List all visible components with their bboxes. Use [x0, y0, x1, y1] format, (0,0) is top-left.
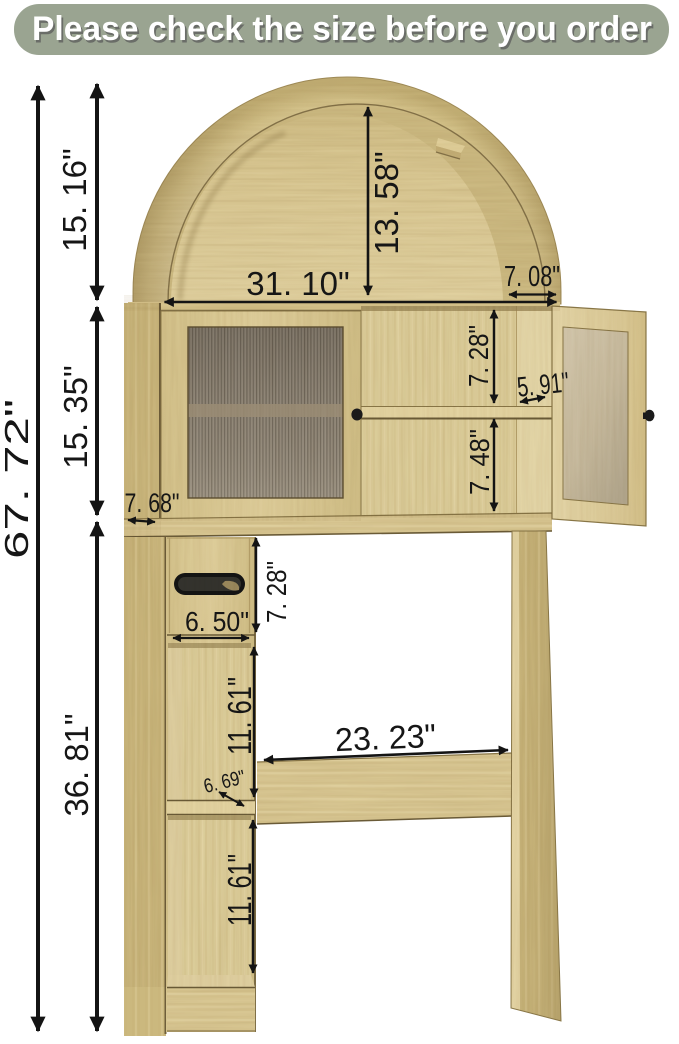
svg-text:7. 08": 7. 08" — [504, 261, 560, 293]
svg-text:31. 10": 31. 10" — [246, 265, 349, 302]
svg-text:36. 81": 36. 81" — [58, 714, 95, 817]
svg-text:11. 61": 11. 61" — [221, 854, 258, 926]
svg-text:67. 72": 67. 72" — [0, 399, 35, 559]
svg-text:5. 91": 5. 91" — [516, 366, 571, 402]
svg-text:7. 48": 7. 48" — [464, 429, 495, 495]
svg-text:6. 50": 6. 50" — [185, 606, 249, 637]
svg-text:15. 16": 15. 16" — [56, 148, 93, 251]
svg-text:13. 58": 13. 58" — [368, 151, 405, 254]
svg-text:23. 23": 23. 23" — [334, 717, 437, 758]
svg-text:7. 28": 7. 28" — [463, 325, 494, 387]
svg-text:Please check the size before y: Please check the size before you order — [32, 10, 652, 48]
svg-text:15. 35": 15. 35" — [57, 365, 94, 468]
svg-text:7. 28": 7. 28" — [261, 561, 292, 623]
svg-text:11. 61": 11. 61" — [221, 677, 258, 755]
svg-text:7. 68": 7. 68" — [125, 488, 180, 518]
